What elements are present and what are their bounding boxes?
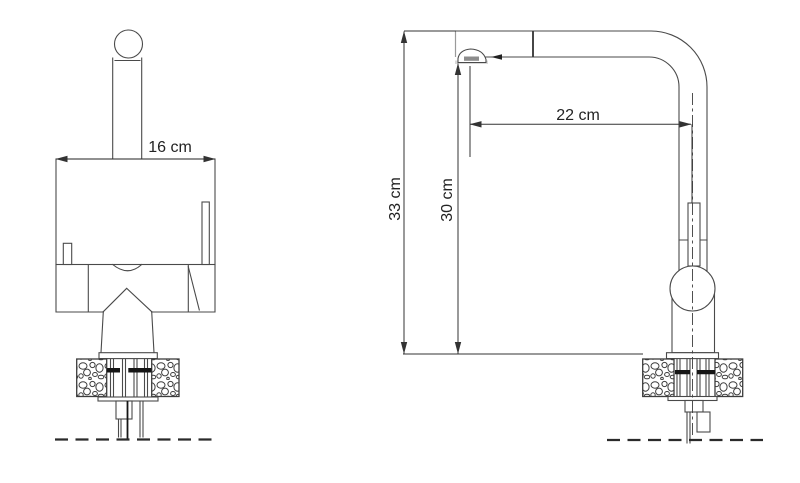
- shank-column-front: [101, 312, 154, 353]
- dimension-width-16cm: 16 cm: [56, 139, 215, 159]
- base-body-front: [56, 159, 215, 265]
- countertop-section-right-side: [715, 359, 743, 397]
- supply-pipe-side: [687, 412, 690, 443]
- side-view: 33 cm 30 cm 22 cm: [387, 31, 763, 443]
- drawing-svg: 16 cm: [0, 0, 800, 483]
- spout-outer-outline-side: [456, 31, 708, 272]
- dimension-spout-reach-22cm: 22 cm: [470, 107, 691, 124]
- connector-block-side: [697, 412, 710, 432]
- body-diagonal-edge-front: [188, 267, 199, 310]
- mounting-flange-front: [99, 353, 157, 359]
- button-detail-front: [63, 243, 71, 264]
- dimension-label-30cm: 30 cm: [439, 178, 456, 222]
- spray-direction-arrow: [491, 54, 502, 60]
- mounting-shank-front: [116, 401, 132, 419]
- handle-lever-side: [688, 203, 700, 266]
- front-view: 16 cm: [55, 30, 216, 440]
- aerator-slot: [464, 57, 479, 61]
- dimension-label-33cm: 33 cm: [387, 177, 404, 221]
- dimension-label-22cm: 22 cm: [556, 107, 600, 124]
- dimension-overall-height-33cm: 33 cm: [387, 32, 404, 354]
- countertop-section-left-front: [77, 359, 107, 397]
- shank-through-hole-lines-side: [677, 359, 709, 397]
- mounting-nut-front: [107, 368, 152, 373]
- spout-tip-circle-front: [115, 30, 143, 58]
- countertop-section-right-front: [152, 359, 179, 397]
- dimension-label-16cm: 16 cm: [148, 139, 192, 156]
- mounting-shank-side: [685, 401, 703, 413]
- body-chevron-front: [103, 288, 151, 311]
- washer-plate-front: [98, 397, 158, 401]
- mounting-nut-side: [675, 370, 715, 374]
- faucet-technical-drawing: 16 cm: [0, 0, 800, 483]
- handle-lever-front: [202, 202, 209, 265]
- tube-socket-arc-front: [113, 265, 142, 271]
- spout-inner-outline-side: [486, 57, 679, 272]
- countertop-section-left-side: [643, 359, 674, 397]
- dimension-spout-height-30cm: 30 cm: [439, 64, 458, 354]
- shank-through-hole-lines-front: [111, 359, 148, 397]
- lower-body-front: [56, 265, 215, 313]
